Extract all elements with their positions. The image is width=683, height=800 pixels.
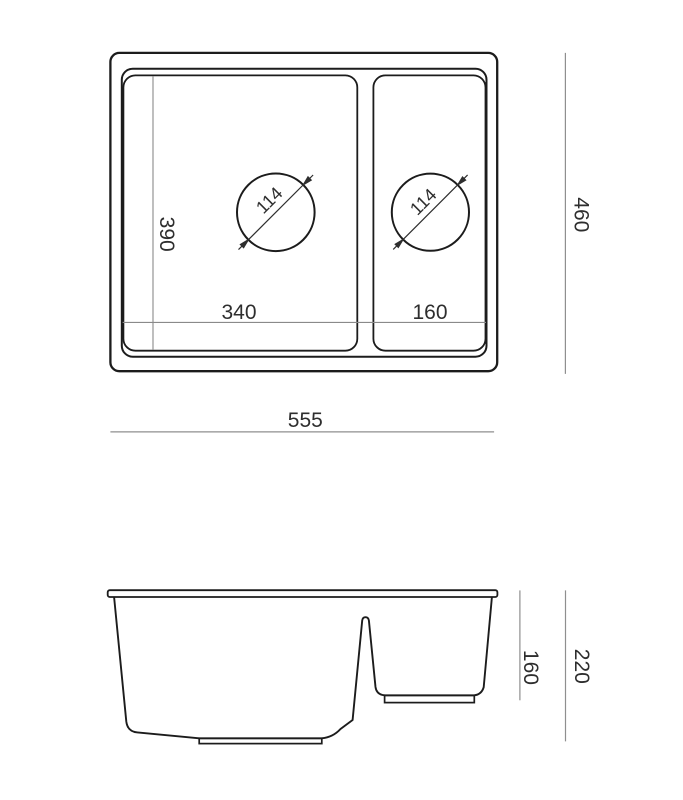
- svg-text:460: 460: [569, 197, 592, 232]
- svg-text:555: 555: [288, 409, 323, 432]
- svg-text:340: 340: [221, 301, 256, 324]
- svg-text:390: 390: [155, 217, 178, 252]
- svg-text:160: 160: [519, 650, 542, 685]
- svg-text:160: 160: [412, 301, 447, 324]
- svg-text:220: 220: [570, 649, 593, 684]
